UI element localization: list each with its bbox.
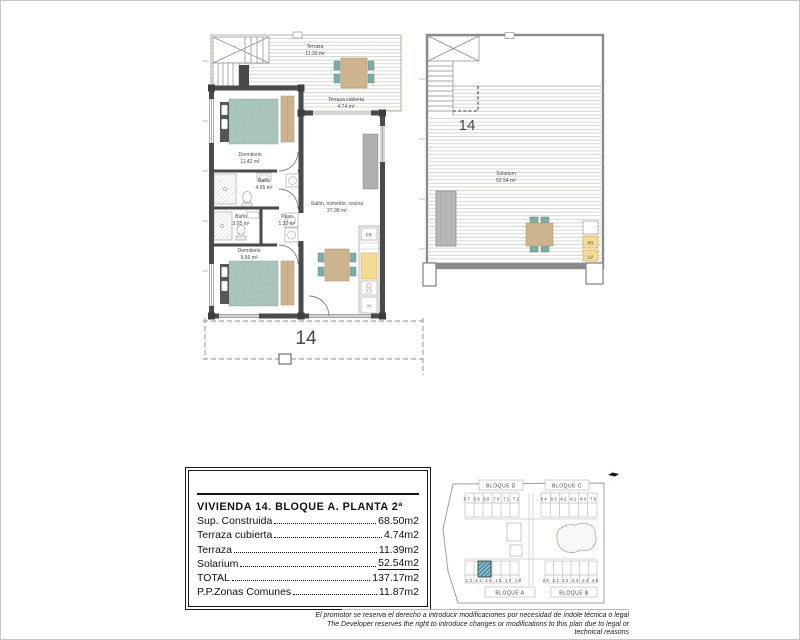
north-arrow-icon bbox=[605, 466, 624, 483]
row-value: 4.74m2 bbox=[384, 529, 419, 541]
pillar-right bbox=[586, 263, 603, 284]
room-area-salon: 27.98 m² bbox=[327, 208, 347, 214]
room-area-bano-2: 3.05 m² bbox=[233, 221, 250, 227]
wardrobe-2 bbox=[281, 261, 294, 305]
fridge-label: FR bbox=[366, 233, 373, 238]
unit-info-table-inner: VIVIENDA 14. BLOQUE A. PLANTA 2ª Sup. Co… bbox=[188, 470, 428, 607]
room-area-dormitorio-1: 11.42 m² bbox=[240, 159, 260, 165]
disclaimer-rule bbox=[342, 609, 629, 610]
row-value: 11.39m2 bbox=[379, 544, 419, 556]
room-label-paso: Paso bbox=[281, 214, 293, 220]
block-a-label: BLOQUE A bbox=[495, 591, 524, 597]
row-label: Terraza bbox=[197, 544, 232, 556]
bed-2 bbox=[220, 261, 278, 306]
info-row-solarium: Solarium 52.54m2 bbox=[197, 556, 419, 570]
room-label-bano-2: Baño bbox=[235, 214, 247, 220]
row-label: P.P.Zonas Comunes bbox=[197, 586, 291, 598]
cooktop bbox=[361, 253, 377, 279]
row-value: 68.50m2 bbox=[378, 515, 419, 527]
wardrobe-1 bbox=[281, 96, 294, 142]
info-row-terraza-cubierta: Terraza cubierta 4.74m2 bbox=[197, 527, 419, 541]
lounger bbox=[436, 191, 456, 246]
room-area-paso: 1.32 m² bbox=[279, 221, 296, 227]
solarium-fridge-label: FR bbox=[588, 241, 595, 246]
pool bbox=[557, 523, 596, 552]
title-rule bbox=[197, 493, 419, 495]
dot-leader bbox=[234, 552, 377, 553]
room-label-solarium: Solarium bbox=[496, 171, 516, 177]
row-value: 137.17m2 bbox=[372, 572, 419, 584]
room-label-salon: Salón, comedor, cocina bbox=[311, 201, 363, 207]
disclaimer-es: El promotor se reserva el derecho a intr… bbox=[301, 612, 629, 621]
room-area-solarium: 52.54 m² bbox=[496, 178, 516, 184]
units-bottom-left: 13 14 15 16 17 18 bbox=[466, 578, 523, 583]
info-row-terraza: Terraza 11.39m2 bbox=[197, 541, 419, 555]
room-area-terraza: 11.39 m² bbox=[305, 51, 325, 57]
dimension-ticks bbox=[202, 61, 208, 271]
solarium-plan: 14 FR LV bbox=[419, 29, 611, 291]
row-label: Solarium bbox=[197, 558, 238, 570]
units-top-left: 67 68 69 70 71 72 bbox=[464, 497, 521, 502]
dot-leader bbox=[232, 580, 370, 581]
solarium-dishwasher-label: LV bbox=[588, 255, 593, 260]
pillar-left bbox=[423, 263, 436, 286]
info-row-zonas-comunes: P.P.Zonas Comunes 11.87m2 bbox=[197, 584, 419, 598]
row-label: TOTAL bbox=[197, 572, 230, 584]
solarium-ticks bbox=[419, 79, 425, 249]
units-bottom-right: 20 21 22 23 24 25 bbox=[543, 578, 600, 583]
kitchen-counter bbox=[359, 226, 379, 314]
dot-leader bbox=[240, 566, 376, 567]
info-table-title: VIVIENDA 14. BLOQUE A. PLANTA 2ª bbox=[197, 501, 419, 513]
dot-leader bbox=[274, 537, 382, 538]
room-label-terraza-cubierta: Terraza cubierta bbox=[328, 97, 364, 103]
dining-table bbox=[325, 249, 349, 281]
main-floor-plan: Terraza 11.39 m² Terraza cubierta 4.74 m… bbox=[201, 21, 426, 376]
solarium-bottom-wall bbox=[427, 263, 603, 268]
row-label: Sup. Construida bbox=[197, 515, 272, 527]
disclaimer-en: The Developer reserves the right to intr… bbox=[301, 621, 629, 638]
dot-leader bbox=[274, 523, 376, 524]
block-b-label: BLOQUE B bbox=[559, 591, 589, 597]
floor-plan-sheet: Terraza 11.39 m² Terraza cubierta 4.74 m… bbox=[0, 0, 800, 640]
room-label-dormitorio-2: Dormitorio bbox=[237, 248, 260, 254]
main-unit-number: 14 bbox=[295, 328, 317, 349]
terrace-notch bbox=[293, 32, 302, 38]
room-area-bano-1: 4.65 m² bbox=[256, 185, 273, 191]
room-label-terraza: Terraza bbox=[307, 44, 324, 50]
info-row-sup-construida: Sup. Construida 68.50m2 bbox=[197, 513, 419, 527]
site-plan: BLOQUE D BLOQUE C BLOQUE A BLOQUE B 67 6… bbox=[441, 463, 627, 611]
highlighted-unit-hatch bbox=[478, 561, 491, 577]
row-label: Terraza cubierta bbox=[197, 529, 272, 541]
block-d-label: BLOQUE D bbox=[486, 484, 516, 490]
room-label-bano-1: Baño bbox=[258, 178, 270, 184]
unit-info-table: VIVIENDA 14. BLOQUE A. PLANTA 2ª Sup. Co… bbox=[185, 467, 431, 610]
info-row-total: TOTAL 137.17m2 bbox=[197, 570, 419, 584]
terrace-table bbox=[341, 58, 367, 88]
summer-kitchen: FR LV bbox=[583, 221, 598, 261]
dot-leader bbox=[293, 594, 377, 595]
disclaimer: El promotor se reserva el derecho a intr… bbox=[301, 612, 629, 638]
room-area-dormitorio-2: 9.56 m² bbox=[241, 255, 258, 261]
units-top-right: 84 83 82 81 80 79 bbox=[541, 497, 598, 502]
row-value: 11.87m2 bbox=[379, 586, 419, 598]
solarium-table bbox=[526, 223, 553, 246]
sofa bbox=[363, 134, 378, 189]
row-value: 52.54m2 bbox=[378, 557, 419, 570]
room-label-dormitorio-1: Dormitorio bbox=[238, 152, 261, 158]
bed-1 bbox=[220, 99, 278, 144]
oven-label: H bbox=[367, 304, 370, 309]
room-area-terraza-cubierta: 4.74 m² bbox=[338, 104, 355, 110]
lot-marker bbox=[279, 354, 291, 364]
solarium-unit-number: 14 bbox=[459, 117, 476, 134]
block-c-label: BLOQUE C bbox=[552, 484, 582, 490]
